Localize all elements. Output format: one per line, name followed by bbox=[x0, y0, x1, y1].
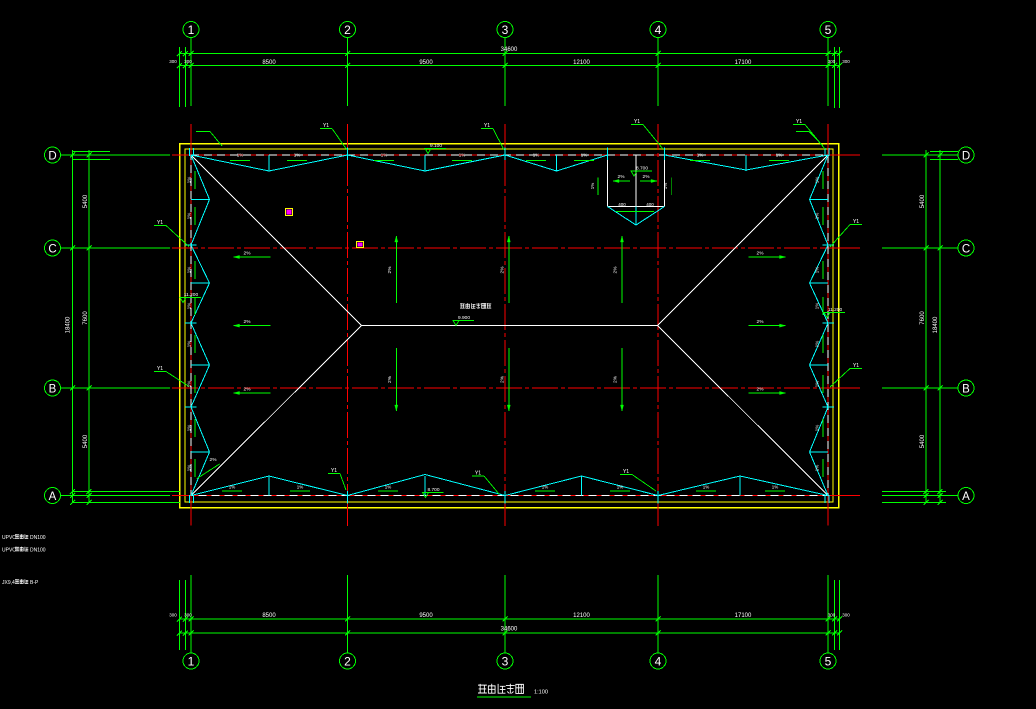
svg-text:34600: 34600 bbox=[501, 47, 518, 53]
svg-text:1%: 1% bbox=[776, 153, 783, 158]
svg-text:300: 300 bbox=[169, 59, 177, 64]
svg-text:UPVC: UPVC bbox=[2, 548, 16, 554]
svg-text:A: A bbox=[962, 491, 970, 503]
svg-text:12100: 12100 bbox=[573, 60, 590, 66]
svg-text:11.200: 11.200 bbox=[184, 292, 199, 298]
svg-text:2%: 2% bbox=[387, 375, 393, 383]
svg-text:17100: 17100 bbox=[735, 60, 752, 66]
svg-text:1%: 1% bbox=[703, 485, 710, 490]
svg-text:1%: 1% bbox=[617, 485, 624, 490]
svg-text:5400: 5400 bbox=[920, 434, 926, 448]
svg-text:2%: 2% bbox=[499, 266, 505, 274]
svg-text:1%: 1% bbox=[187, 267, 192, 274]
svg-text:Y1: Y1 bbox=[323, 123, 329, 129]
svg-text:2%: 2% bbox=[244, 251, 252, 257]
svg-text:5400: 5400 bbox=[83, 434, 89, 448]
svg-text:1%: 1% bbox=[294, 153, 301, 158]
svg-text:3: 3 bbox=[502, 23, 509, 37]
svg-text:300: 300 bbox=[842, 613, 850, 618]
svg-text:1%: 1% bbox=[385, 485, 392, 490]
svg-text:2%: 2% bbox=[618, 174, 626, 180]
svg-text:DN100: DN100 bbox=[30, 535, 46, 541]
svg-text:1%: 1% bbox=[815, 381, 820, 388]
svg-text:A: A bbox=[49, 491, 57, 503]
svg-text:C: C bbox=[48, 243, 56, 255]
svg-text:2%: 2% bbox=[499, 375, 505, 383]
svg-text:2: 2 bbox=[344, 655, 351, 669]
svg-text:17100: 17100 bbox=[735, 613, 752, 619]
svg-text:1%: 1% bbox=[187, 425, 192, 432]
svg-text:D: D bbox=[962, 150, 970, 162]
svg-text:B-P: B-P bbox=[30, 580, 39, 586]
svg-text:1%: 1% bbox=[297, 485, 304, 490]
svg-text:1%: 1% bbox=[815, 465, 820, 472]
svg-text:1%: 1% bbox=[381, 153, 388, 158]
svg-text:1%: 1% bbox=[187, 303, 192, 310]
svg-text:300: 300 bbox=[842, 59, 850, 64]
svg-text:Y1: Y1 bbox=[796, 119, 802, 125]
svg-text:2%: 2% bbox=[643, 174, 651, 180]
svg-text:1%: 1% bbox=[815, 213, 820, 220]
svg-text:2%: 2% bbox=[244, 319, 252, 325]
svg-text:300: 300 bbox=[184, 613, 192, 618]
svg-text:2%: 2% bbox=[757, 319, 765, 325]
svg-text:5400: 5400 bbox=[83, 194, 89, 208]
svg-text:2%: 2% bbox=[387, 266, 393, 274]
svg-text:1%: 1% bbox=[542, 485, 549, 490]
svg-text:Y1: Y1 bbox=[157, 220, 163, 226]
svg-text:5: 5 bbox=[825, 655, 832, 669]
svg-text:1%: 1% bbox=[663, 183, 668, 190]
svg-text:1%: 1% bbox=[237, 153, 244, 158]
svg-text:1%: 1% bbox=[815, 341, 820, 348]
svg-text:DN100: DN100 bbox=[30, 548, 46, 554]
svg-text:2%: 2% bbox=[757, 251, 765, 257]
svg-text:Y1: Y1 bbox=[157, 366, 163, 372]
svg-text:1%: 1% bbox=[187, 341, 192, 348]
svg-text:300: 300 bbox=[828, 613, 836, 618]
svg-text:7600: 7600 bbox=[83, 311, 89, 325]
svg-text:1%: 1% bbox=[187, 177, 192, 184]
svg-text:Y1: Y1 bbox=[475, 471, 481, 477]
svg-text:1%: 1% bbox=[533, 153, 540, 158]
svg-text:2%: 2% bbox=[613, 375, 619, 383]
svg-text:1%: 1% bbox=[815, 177, 820, 184]
svg-text:B: B bbox=[962, 383, 970, 395]
svg-text:11.200: 11.200 bbox=[828, 307, 843, 313]
svg-text:UPVC: UPVC bbox=[2, 535, 16, 541]
svg-text:300: 300 bbox=[828, 59, 836, 64]
svg-text:Y1: Y1 bbox=[331, 468, 337, 474]
svg-text:Y1: Y1 bbox=[623, 469, 629, 475]
svg-text:1:100: 1:100 bbox=[534, 690, 548, 696]
svg-text:1: 1 bbox=[188, 655, 195, 669]
svg-text:1%: 1% bbox=[187, 465, 192, 472]
svg-text:1%: 1% bbox=[229, 485, 236, 490]
svg-text:3: 3 bbox=[502, 655, 509, 669]
svg-text:Y1: Y1 bbox=[853, 363, 859, 369]
svg-text:1%: 1% bbox=[459, 153, 466, 158]
svg-text:1%: 1% bbox=[590, 183, 595, 190]
svg-text:5: 5 bbox=[825, 23, 832, 37]
svg-text:1%: 1% bbox=[815, 425, 820, 432]
svg-text:7600: 7600 bbox=[920, 311, 926, 325]
svg-text:9500: 9500 bbox=[419, 613, 433, 619]
svg-text:1%: 1% bbox=[772, 485, 779, 490]
svg-text:5400: 5400 bbox=[920, 194, 926, 208]
svg-text:D: D bbox=[48, 150, 56, 162]
svg-text:400: 400 bbox=[646, 202, 654, 207]
svg-text:18400: 18400 bbox=[66, 316, 72, 333]
svg-text:Y1: Y1 bbox=[634, 119, 640, 125]
svg-text:B: B bbox=[49, 383, 57, 395]
svg-text:34600: 34600 bbox=[501, 627, 518, 633]
svg-text:400: 400 bbox=[618, 202, 626, 207]
svg-text:2%: 2% bbox=[613, 266, 619, 274]
svg-text:18400: 18400 bbox=[933, 316, 939, 333]
svg-text:12100: 12100 bbox=[573, 613, 590, 619]
svg-text:2: 2 bbox=[344, 23, 351, 37]
svg-text:1%: 1% bbox=[581, 153, 588, 158]
svg-text:9.900: 9.900 bbox=[458, 315, 470, 321]
svg-text:4: 4 bbox=[655, 655, 662, 669]
svg-text:9500: 9500 bbox=[419, 60, 433, 66]
svg-text:4: 4 bbox=[655, 23, 662, 37]
svg-text:1%: 1% bbox=[815, 303, 820, 310]
svg-text:9.100: 9.100 bbox=[430, 143, 442, 149]
svg-text:1%: 1% bbox=[697, 153, 704, 158]
svg-text:JX9,4: JX9,4 bbox=[2, 580, 15, 586]
svg-text:2%: 2% bbox=[244, 387, 252, 393]
svg-text:8.700: 8.700 bbox=[427, 487, 439, 493]
svg-text:300: 300 bbox=[184, 59, 192, 64]
svg-text:1%: 1% bbox=[187, 381, 192, 388]
svg-text:Y1: Y1 bbox=[853, 219, 859, 225]
svg-text:300: 300 bbox=[169, 613, 177, 618]
svg-text:8500: 8500 bbox=[262, 60, 276, 66]
svg-text:Y1: Y1 bbox=[484, 123, 490, 129]
svg-text:2%: 2% bbox=[210, 457, 218, 463]
svg-text:8500: 8500 bbox=[262, 613, 276, 619]
svg-text:C: C bbox=[962, 243, 970, 255]
svg-text:8.700: 8.700 bbox=[636, 166, 648, 172]
svg-text:1%: 1% bbox=[187, 213, 192, 220]
svg-text:1%: 1% bbox=[815, 267, 820, 274]
svg-text:1: 1 bbox=[188, 23, 195, 37]
svg-text:2%: 2% bbox=[757, 387, 765, 393]
